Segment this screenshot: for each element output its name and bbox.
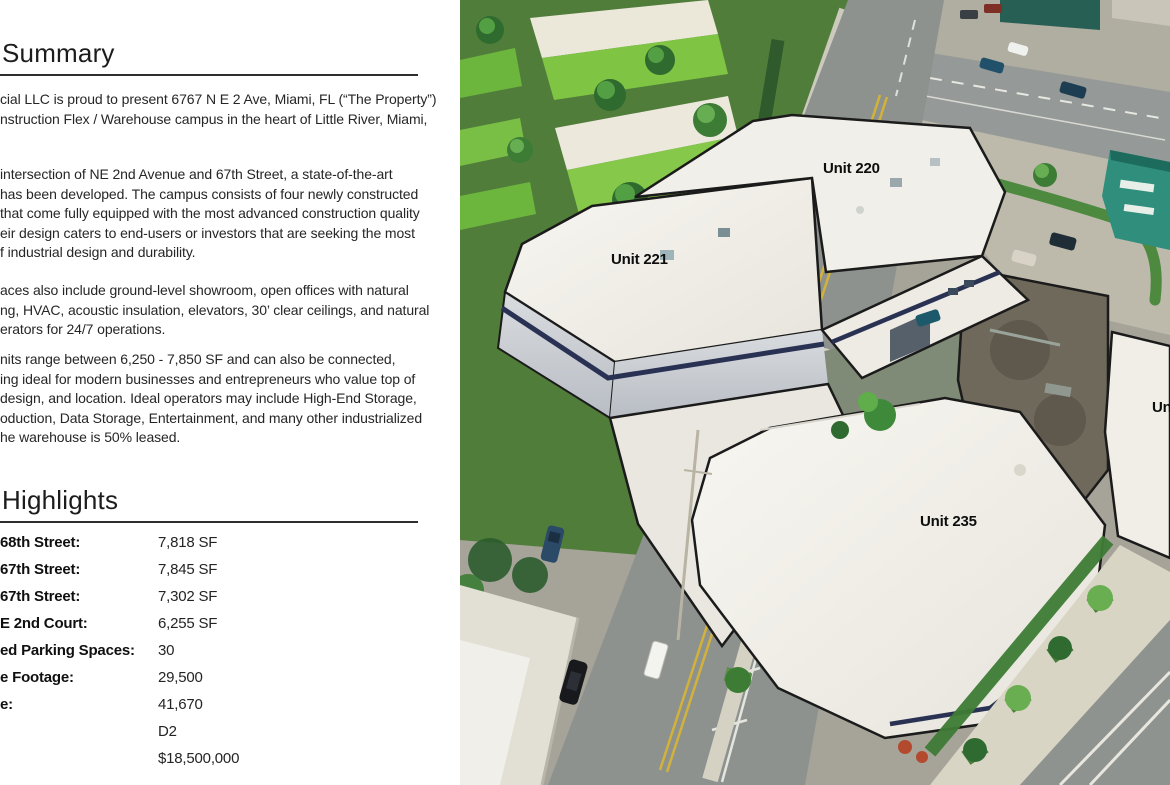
table-row: 67th Street: 7,302 SF: [0, 583, 440, 610]
paragraph-line: eir design caters to end-users or invest…: [0, 224, 460, 244]
row-label: e:: [0, 691, 158, 718]
paragraph-line: ng, HVAC, acoustic insulation, elevators…: [0, 301, 460, 321]
row-label: 67th Street:: [0, 556, 158, 583]
table-row: e Footage: 29,500: [0, 664, 440, 691]
row-value: 7,818 SF: [158, 529, 217, 556]
row-value: 29,500: [158, 664, 203, 691]
aerial-photo: Unit 220 Unit 221 Unit 235 Un: [460, 0, 1170, 785]
summary-heading: Summary: [2, 38, 115, 69]
paragraph-line: cial LLC is proud to present 6767 N E 2 …: [0, 90, 460, 110]
summary-paragraph-3: aces also include ground-level showroom,…: [0, 281, 460, 340]
paragraph-line: intersection of NE 2nd Avenue and 67th S…: [0, 165, 460, 185]
table-row: e: 41,670: [0, 691, 440, 718]
paragraph-line: nits range between 6,250 - 7,850 SF and …: [0, 350, 460, 370]
paragraph-line: f industrial design and durability.: [0, 243, 460, 263]
row-label: [0, 745, 158, 772]
row-label: ed Parking Spaces:: [0, 637, 158, 664]
unit-221-label: Unit 221: [611, 251, 668, 268]
row-value: 7,845 SF: [158, 556, 217, 583]
row-label: 68th Street:: [0, 529, 158, 556]
unit-235-label: Unit 235: [920, 513, 977, 530]
row-label: E 2nd Court:: [0, 610, 158, 637]
table-row: 68th Street: 7,818 SF: [0, 529, 440, 556]
table-row: ed Parking Spaces: 30: [0, 637, 440, 664]
summary-paragraph-1: cial LLC is proud to present 6767 N E 2 …: [0, 90, 460, 129]
table-row: D2: [0, 718, 440, 745]
paragraph-line: erators for 24/7 operations.: [0, 320, 460, 340]
paragraph-line: ing ideal for modern businesses and entr…: [0, 370, 460, 390]
row-value: $18,500,000: [158, 745, 239, 772]
unit-partial-label: Un: [1152, 399, 1170, 416]
paragraph-line: he warehouse is 50% leased.: [0, 428, 460, 448]
paragraph-line: that come fully equipped with the most a…: [0, 204, 460, 224]
table-row: E 2nd Court: 6,255 SF: [0, 610, 440, 637]
highlights-table: 68th Street: 7,818 SF 67th Street: 7,845…: [0, 529, 440, 772]
row-value: 7,302 SF: [158, 583, 217, 610]
paragraph-line: aces also include ground-level showroom,…: [0, 281, 460, 301]
paragraph-line: nstruction Flex / Warehouse campus in th…: [0, 110, 460, 130]
table-row: $18,500,000: [0, 745, 440, 772]
row-label: 67th Street:: [0, 583, 158, 610]
unit-220-label: Unit 220: [823, 160, 880, 177]
row-value: D2: [158, 718, 177, 745]
paragraph-line: design, and location. Ideal operators ma…: [0, 389, 460, 409]
paragraph-line: oduction, Data Storage, Entertainment, a…: [0, 409, 460, 429]
highlights-heading: Highlights: [2, 485, 118, 516]
summary-divider: [0, 74, 418, 76]
row-label: e Footage:: [0, 664, 158, 691]
row-label: [0, 718, 158, 745]
aerial-photo-scene: [460, 0, 1170, 785]
summary-paragraph-4: nits range between 6,250 - 7,850 SF and …: [0, 350, 460, 448]
row-value: 30: [158, 637, 174, 664]
table-row: 67th Street: 7,845 SF: [0, 556, 440, 583]
brochure-text-panel: Summary cial LLC is proud to present 676…: [0, 0, 460, 785]
row-value: 6,255 SF: [158, 610, 217, 637]
highlights-divider: [0, 521, 418, 523]
paragraph-line: has been developed. The campus consists …: [0, 185, 460, 205]
row-value: 41,670: [158, 691, 203, 718]
summary-paragraph-2: intersection of NE 2nd Avenue and 67th S…: [0, 165, 460, 263]
